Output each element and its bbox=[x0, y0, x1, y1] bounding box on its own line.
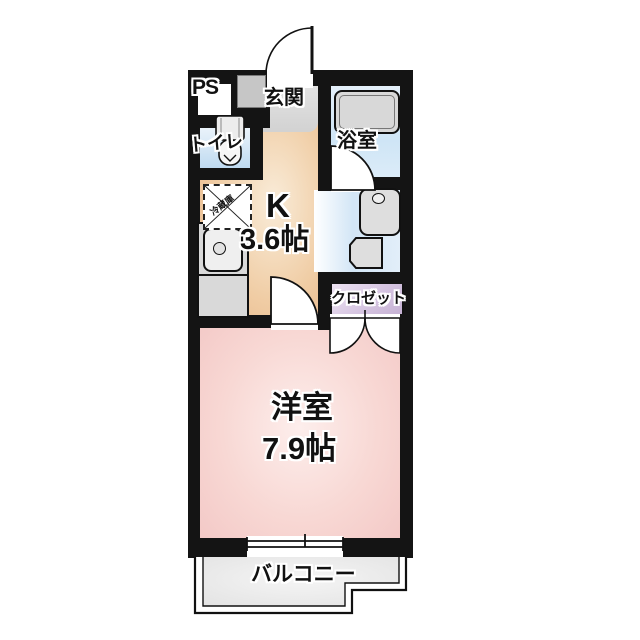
bathroom-label: 浴室 bbox=[337, 131, 377, 151]
symbol-overlay bbox=[0, 0, 640, 640]
toilet-label: トイレ bbox=[188, 132, 243, 155]
washing-machine-icon bbox=[350, 238, 382, 268]
western-room-label: 洋室 bbox=[271, 392, 333, 423]
floorplan-canvas: 冷蔵庫 bbox=[0, 0, 640, 640]
closet-door-right-arc-icon bbox=[365, 318, 400, 353]
western-room-size-label: 7.9帖 bbox=[262, 433, 336, 464]
closet-label: クロゼット bbox=[331, 291, 406, 306]
kitchen-size-label: 3.6帖 bbox=[240, 226, 309, 255]
closet-door-left-arc-icon bbox=[330, 318, 365, 353]
balcony-label: バルコニー bbox=[251, 564, 356, 585]
bathroom-door-arc-icon bbox=[331, 146, 375, 190]
kitchen-type-label: K bbox=[266, 189, 290, 222]
ps-label: PS bbox=[192, 77, 218, 98]
balcony-window-icon bbox=[247, 534, 343, 552]
entrance-label: 玄関 bbox=[264, 88, 304, 108]
room-door-arc-icon bbox=[271, 277, 318, 324]
entrance-door-arc-icon bbox=[266, 28, 312, 74]
